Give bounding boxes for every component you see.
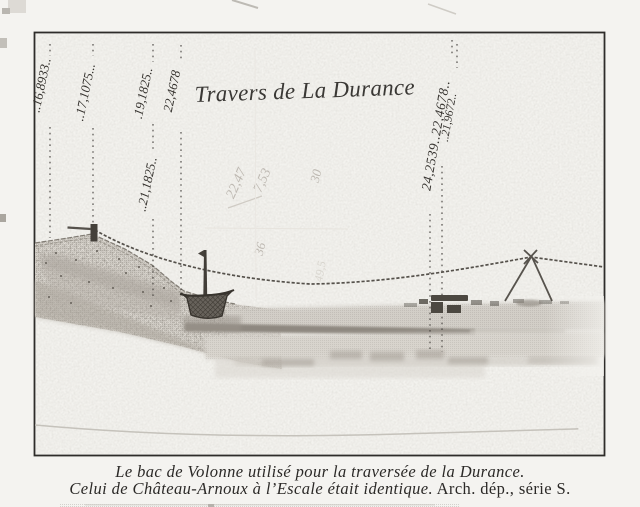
svg-text:Celui de Château-Arnoux à l’Es: Celui de Château-Arnoux à l’Escale était… — [69, 479, 570, 498]
